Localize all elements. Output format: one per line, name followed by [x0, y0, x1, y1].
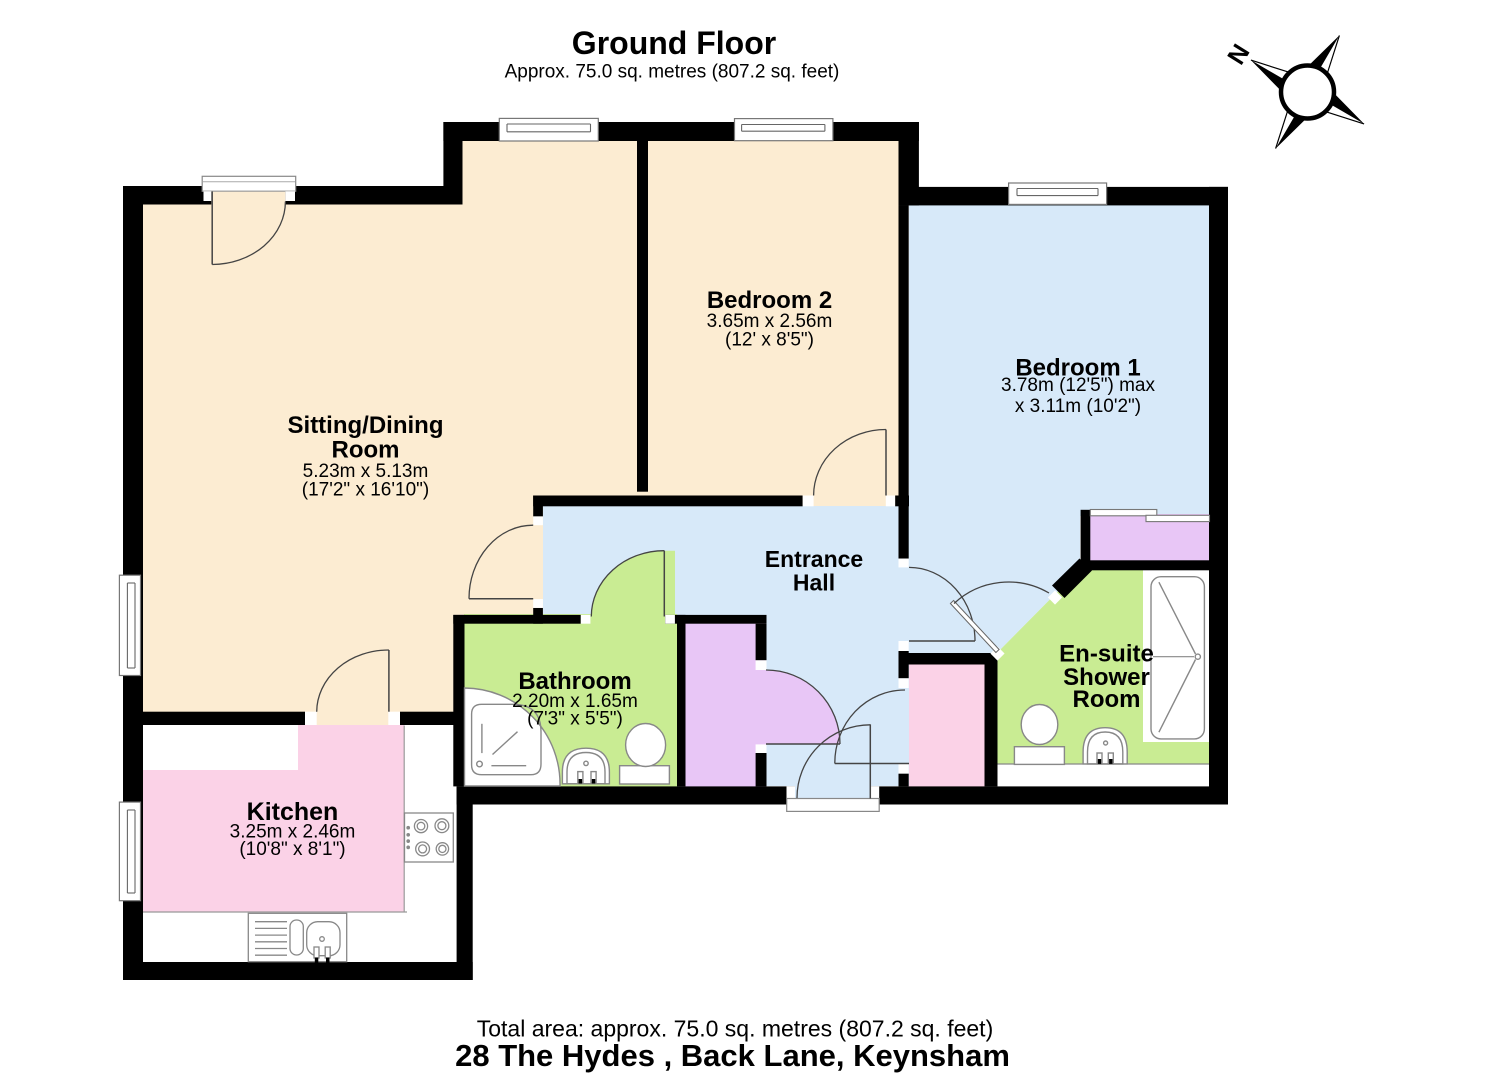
svg-text:3.78m (12'5") max: 3.78m (12'5") max: [1001, 375, 1155, 396]
svg-text:Bedroom 2: Bedroom 2: [707, 287, 832, 314]
svg-text:(17'2" x 16'10"): (17'2" x 16'10"): [302, 480, 429, 501]
svg-text:Entrance: Entrance: [765, 546, 863, 572]
svg-text:(12' x 8'5"): (12' x 8'5"): [725, 330, 814, 351]
svg-text:Approx. 75.0 sq. metres (807.2: Approx. 75.0 sq. metres (807.2 sq. feet): [505, 62, 840, 83]
svg-text:(7'3" x 5'5"): (7'3" x 5'5"): [527, 709, 623, 730]
svg-text:x 3.11m (10'2"): x 3.11m (10'2"): [1015, 396, 1141, 417]
svg-text:(10'8" x 8'1"): (10'8" x 8'1"): [239, 839, 345, 860]
svg-text:Sitting/Dining: Sitting/Dining: [288, 412, 444, 439]
svg-text:Room: Room: [1073, 686, 1141, 713]
svg-text:28 The Hydes , Back Lane, Keyn: 28 The Hydes , Back Lane, Keynsham: [455, 1038, 1010, 1073]
svg-text:Hall: Hall: [793, 570, 835, 596]
svg-text:Ground Floor: Ground Floor: [572, 25, 776, 61]
svg-text:Room: Room: [332, 437, 400, 464]
